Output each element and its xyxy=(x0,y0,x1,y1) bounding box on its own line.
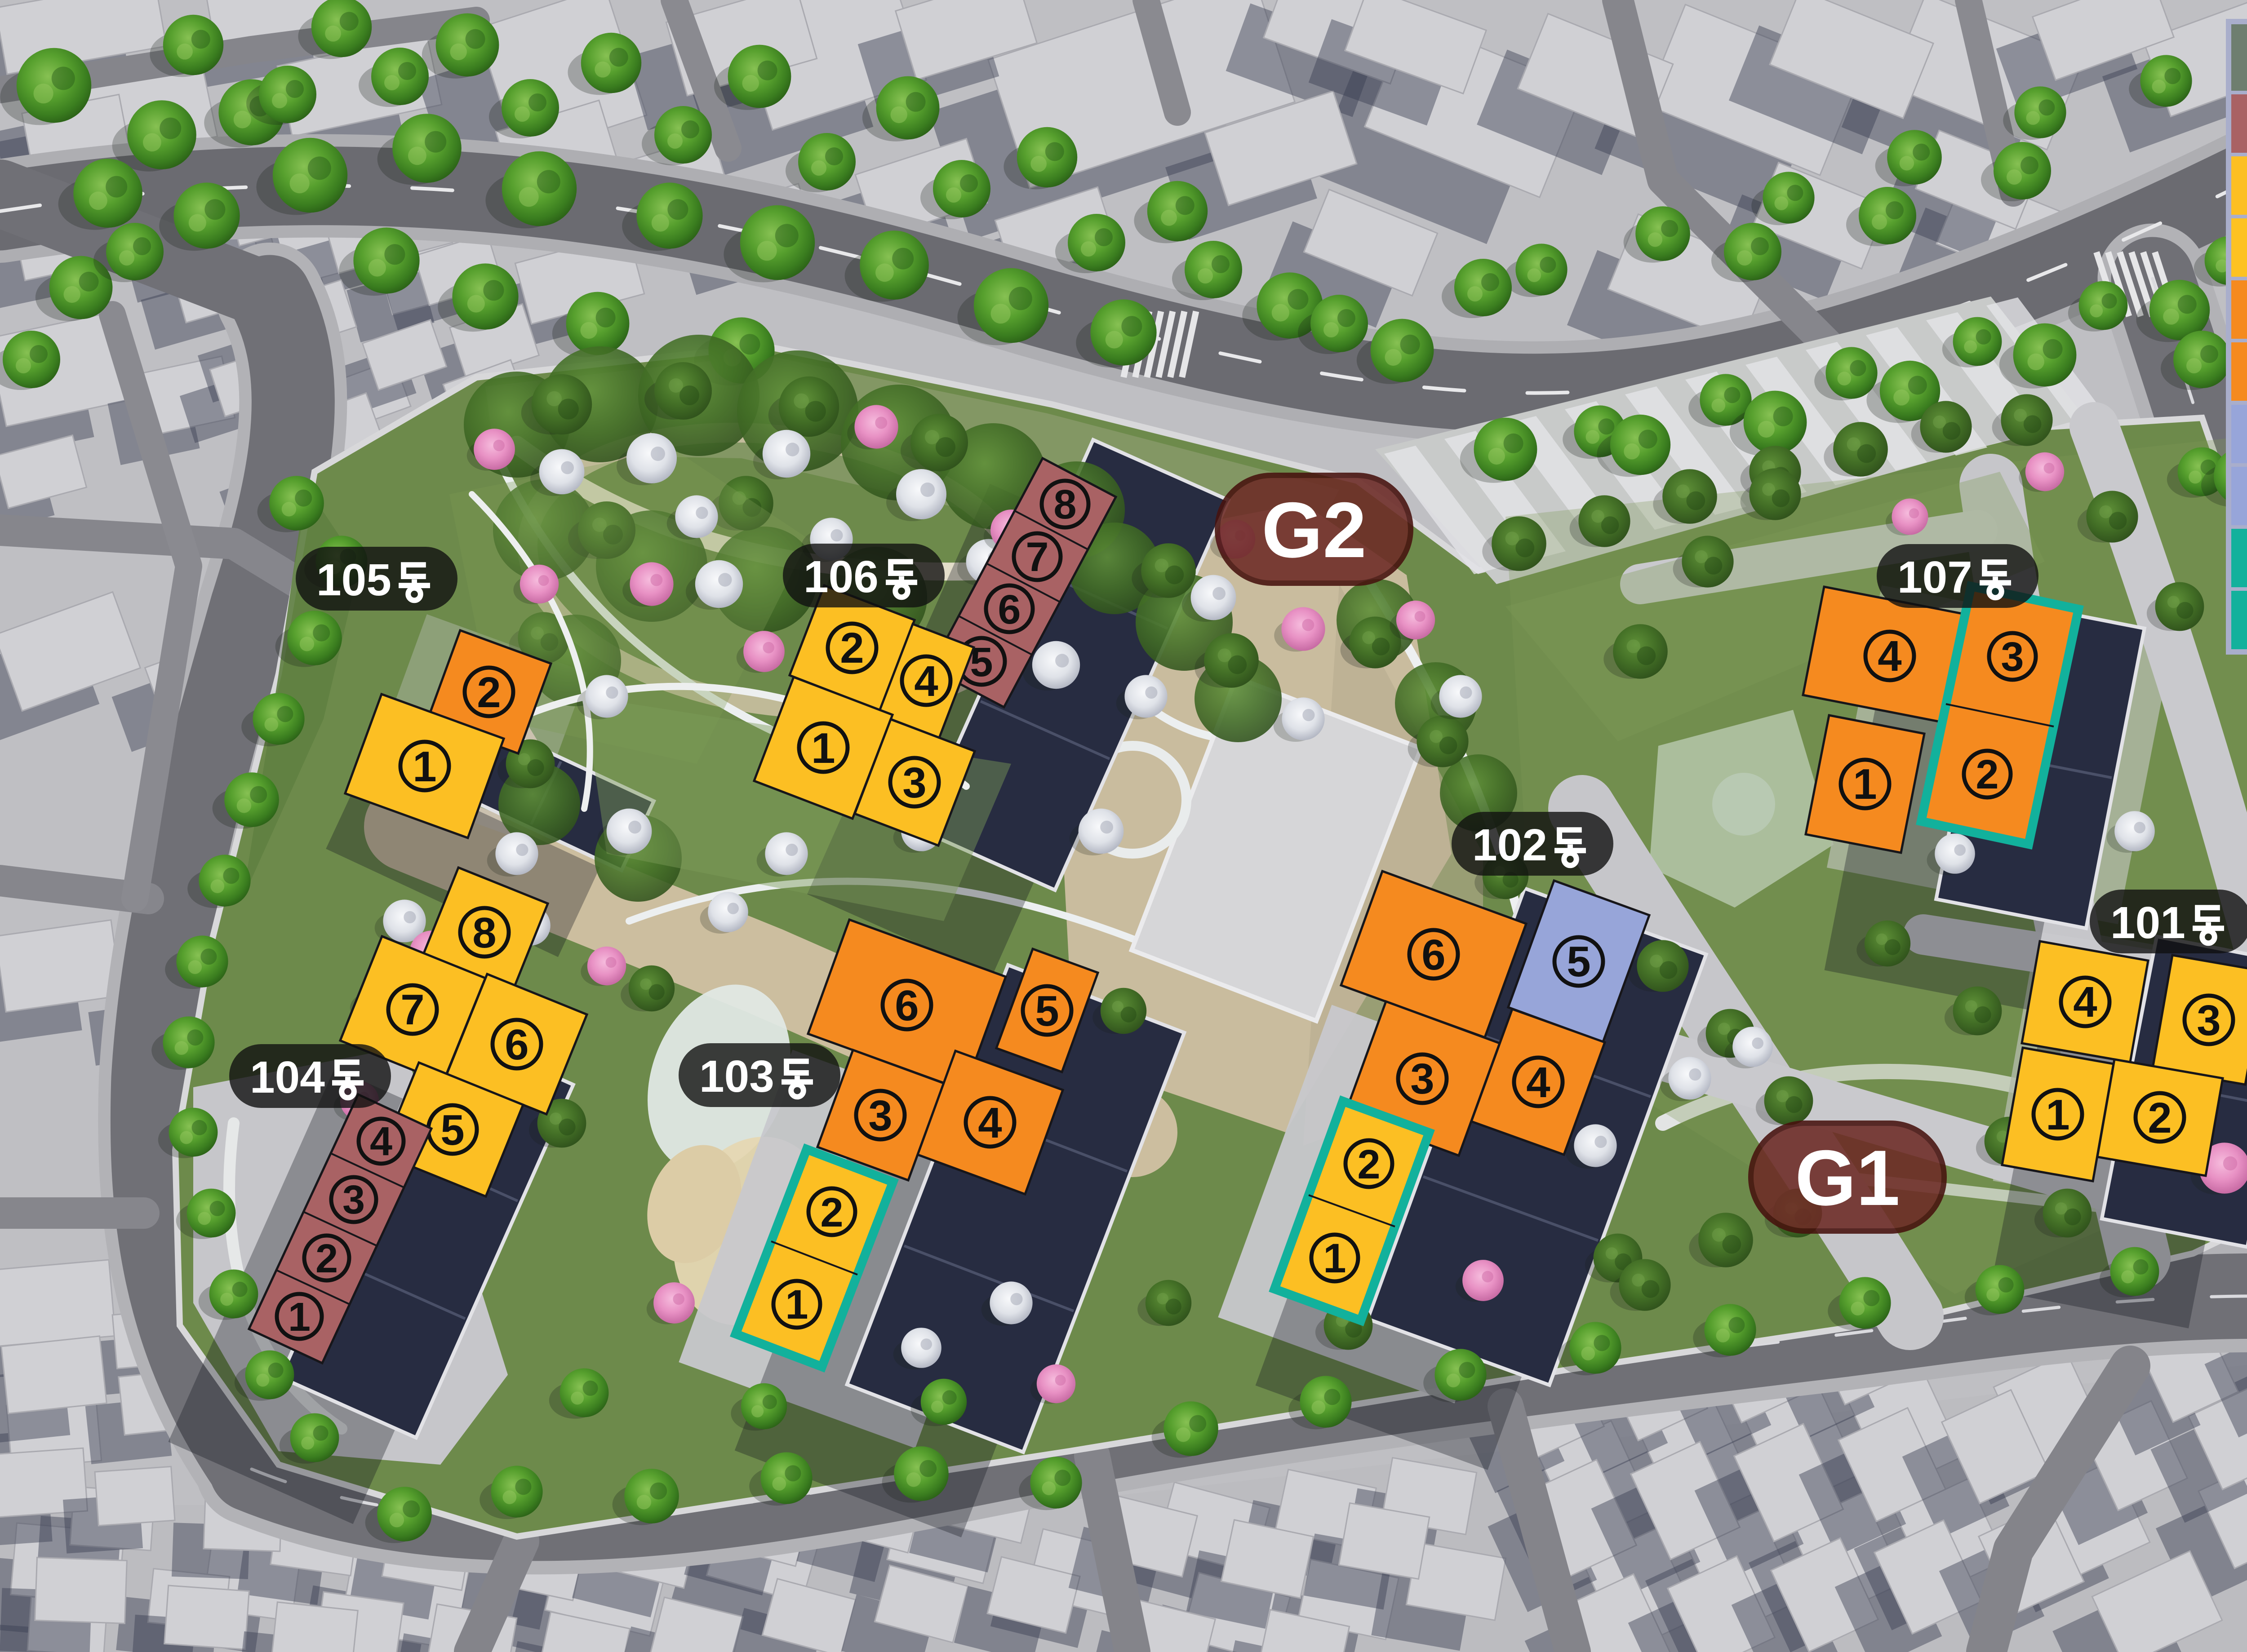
svg-text:G1: G1 xyxy=(1795,1134,1900,1222)
svg-text:G2: G2 xyxy=(1261,487,1366,574)
svg-text:8: 8 xyxy=(1053,482,1076,527)
svg-text:1: 1 xyxy=(811,724,835,772)
svg-text:3: 3 xyxy=(868,1092,892,1140)
svg-text:3: 3 xyxy=(2197,997,2220,1045)
svg-text:103: 103 xyxy=(699,1051,774,1102)
svg-text:2: 2 xyxy=(840,624,864,672)
svg-text:7: 7 xyxy=(1026,534,1048,580)
svg-text:4: 4 xyxy=(914,657,938,705)
svg-text:102: 102 xyxy=(1472,820,1547,870)
svg-text:8: 8 xyxy=(472,909,496,957)
svg-text:5: 5 xyxy=(1035,987,1059,1035)
svg-text:1: 1 xyxy=(785,1282,808,1328)
svg-text:2: 2 xyxy=(1976,752,1998,797)
svg-text:104: 104 xyxy=(250,1052,325,1103)
svg-text:5: 5 xyxy=(440,1106,464,1154)
svg-text:6: 6 xyxy=(1421,931,1445,979)
svg-text:4: 4 xyxy=(1526,1059,1550,1107)
svg-text:5: 5 xyxy=(1567,938,1590,986)
svg-text:1: 1 xyxy=(1323,1236,1346,1281)
svg-text:107: 107 xyxy=(1897,552,1972,602)
svg-text:1: 1 xyxy=(1853,760,1877,808)
svg-text:2: 2 xyxy=(1357,1142,1380,1187)
svg-text:4: 4 xyxy=(2073,978,2097,1026)
svg-text:6: 6 xyxy=(998,587,1021,633)
svg-text:2: 2 xyxy=(2148,1094,2172,1142)
svg-text:105: 105 xyxy=(316,555,391,605)
svg-text:3: 3 xyxy=(1410,1055,1434,1103)
svg-text:3: 3 xyxy=(342,1178,365,1222)
svg-text:4: 4 xyxy=(370,1119,392,1164)
svg-text:6: 6 xyxy=(895,982,919,1030)
svg-text:4: 4 xyxy=(978,1099,1002,1147)
svg-text:6: 6 xyxy=(505,1021,528,1069)
svg-text:1: 1 xyxy=(2046,1091,2069,1139)
svg-text:106: 106 xyxy=(804,552,879,602)
svg-text:7: 7 xyxy=(400,986,424,1034)
svg-text:3: 3 xyxy=(902,759,926,807)
svg-text:1: 1 xyxy=(413,743,436,791)
svg-text:101: 101 xyxy=(2110,898,2185,948)
svg-text:2: 2 xyxy=(477,669,501,717)
svg-text:2: 2 xyxy=(820,1190,843,1236)
svg-text:2: 2 xyxy=(315,1236,338,1281)
svg-text:3: 3 xyxy=(2001,634,2024,680)
svg-text:4: 4 xyxy=(1878,632,1901,680)
svg-text:1: 1 xyxy=(288,1295,311,1340)
